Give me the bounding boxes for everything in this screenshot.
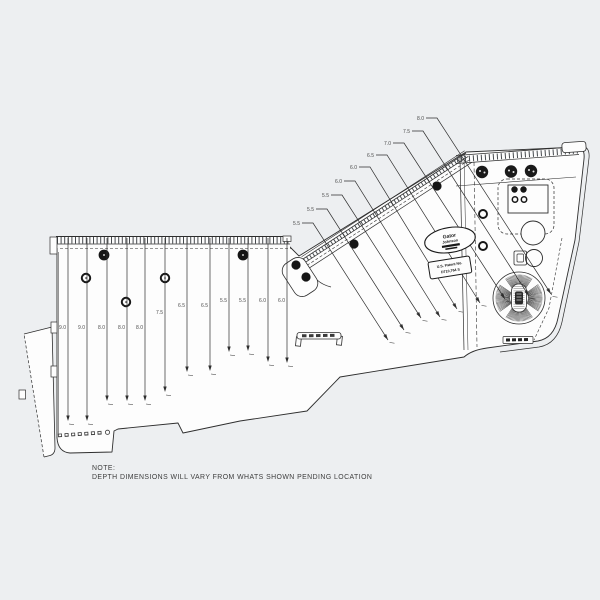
bolt-head bbox=[525, 165, 537, 177]
depth-label: 8.0 bbox=[118, 325, 125, 331]
depth-label: 6.0 bbox=[335, 179, 342, 185]
note-title: NOTE: bbox=[92, 465, 115, 472]
snap-dot bbox=[291, 260, 300, 269]
depth-label: 6.5 bbox=[178, 303, 185, 309]
fastener-dot bbox=[520, 186, 526, 192]
grommet-ring bbox=[479, 210, 487, 218]
depth-label: 5.5 bbox=[322, 193, 329, 199]
grommet-ring bbox=[122, 298, 130, 306]
depth-label: 5.5 bbox=[239, 298, 246, 304]
technical-drawing: 9.09.08.08.08.07.56.56.55.55.56.06.05.55… bbox=[0, 0, 600, 600]
depth-label: 7.5 bbox=[403, 129, 410, 135]
grommet-ring bbox=[512, 197, 517, 202]
edge-tab bbox=[19, 390, 26, 399]
depth-label: 7.5 bbox=[156, 310, 163, 316]
speaker-hub-center bbox=[515, 292, 523, 305]
depth-label: 8.0 bbox=[98, 325, 105, 331]
bolt-head bbox=[476, 166, 488, 178]
round-cutout-large bbox=[521, 221, 545, 245]
depth-label: 8.0 bbox=[417, 116, 424, 122]
corner-cap bbox=[562, 141, 587, 153]
note-body: DEPTH DIMENSIONS WILL VARY FROM WHATS SH… bbox=[92, 474, 372, 481]
label-plate bbox=[503, 337, 533, 344]
depth-label: 9.0 bbox=[59, 325, 66, 331]
edge-tab bbox=[51, 322, 57, 333]
snap-dot bbox=[349, 239, 358, 248]
grommet-ring bbox=[82, 274, 90, 282]
bolt-head bbox=[505, 165, 517, 177]
depth-label: 9.0 bbox=[78, 325, 85, 331]
depth-label: 6.5 bbox=[201, 303, 208, 309]
snap-dot bbox=[238, 250, 249, 261]
depth-label: 6.0 bbox=[350, 165, 357, 171]
depth-label: 6.5 bbox=[367, 153, 374, 159]
depth-label: 6.0 bbox=[278, 298, 285, 304]
depth-label: 5.5 bbox=[220, 298, 227, 304]
depth-label: 5.5 bbox=[293, 221, 300, 227]
rail-end-cap bbox=[50, 237, 57, 254]
depth-label: 8.0 bbox=[136, 325, 143, 331]
edge-tab bbox=[51, 366, 57, 377]
fastener-dot bbox=[511, 186, 517, 192]
depth-label: 6.0 bbox=[259, 298, 266, 304]
snap-dot bbox=[99, 250, 110, 261]
depth-label: 7.0 bbox=[384, 141, 391, 147]
snap-dot bbox=[301, 272, 310, 281]
grommet-ring bbox=[479, 242, 487, 250]
grommet-ring bbox=[521, 197, 526, 202]
depth-label: 5.5 bbox=[307, 207, 314, 213]
